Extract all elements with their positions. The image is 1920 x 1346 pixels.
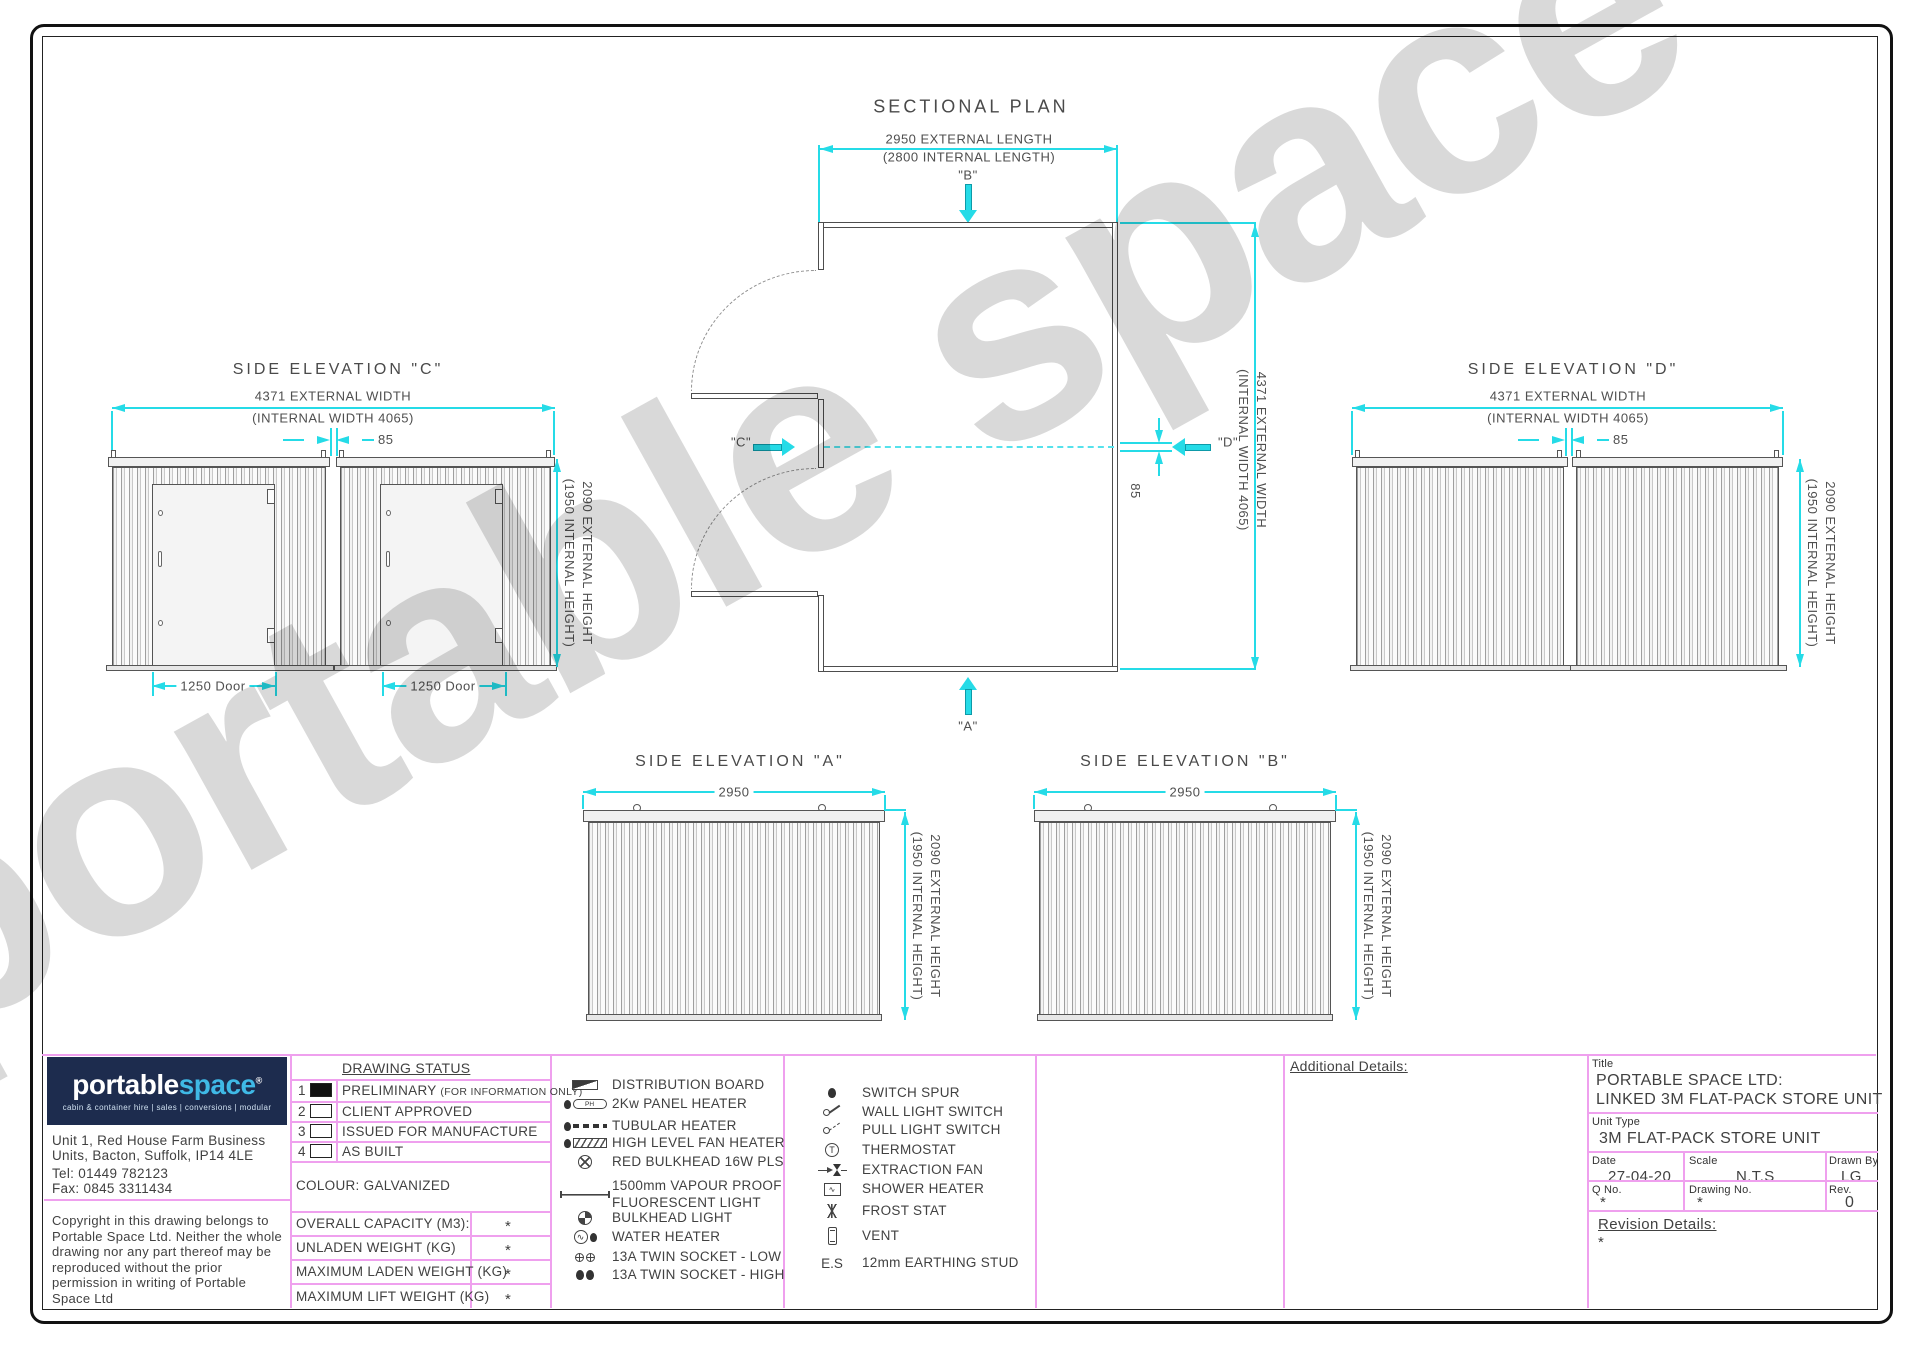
dim-arrow: [262, 682, 275, 690]
legend-row: 1500mm VAPOUR PROOF FLUORESCENT LIGHT: [558, 1178, 787, 1212]
elev-c-height-dim: 2090 EXTERNAL HEIGHT (1950 INTERNAL HEIG…: [560, 479, 596, 648]
legend-label: RED BULKHEAD 16W PLS: [612, 1154, 787, 1171]
dim-ext-line: [1518, 439, 1539, 441]
legend-label: VENT: [862, 1228, 1037, 1245]
company-fax: Fax: 0845 3311434: [52, 1181, 172, 1196]
table-line: [1587, 1210, 1878, 1212]
dim-ext-line: [818, 145, 820, 222]
title-line2: LINKED 3M FLAT-PACK STORE UNIT: [1596, 1091, 1883, 1109]
section-arrow-c: [753, 444, 782, 451]
elev-a-body: [588, 822, 880, 1016]
water-heater-icon: ∿: [558, 1230, 612, 1244]
elev-a-height-dim-line1: 2090 EXTERNAL HEIGHT: [926, 832, 944, 1001]
dim-arrow: [152, 682, 165, 690]
elev-a-roof: [583, 810, 885, 822]
fluorescent-light-icon: [558, 1191, 612, 1198]
dim-arrow: [1155, 451, 1163, 464]
dim-ext-line: [283, 439, 304, 441]
dim-arrow: [820, 145, 833, 153]
dim-ext-line: [1120, 442, 1172, 444]
table-line: [42, 1054, 1876, 1056]
scale-label: Scale: [1689, 1155, 1718, 1167]
dim-arrow: [1251, 657, 1259, 670]
dim-line: [904, 812, 906, 1020]
legend-row: WALL LIGHT SWITCH: [812, 1104, 1037, 1121]
legend-row: TUBULAR HEATER: [558, 1118, 787, 1135]
panel-heater-icon: PH: [558, 1099, 612, 1109]
weight-value: *: [505, 1242, 511, 1259]
door-hinge: [267, 628, 275, 643]
plan-wall-top: [818, 222, 1118, 228]
thermostat-icon: T: [812, 1143, 852, 1157]
elev-c-door-1: [152, 484, 275, 667]
dim-ext-line: [1335, 809, 1357, 811]
dim-arrow: [382, 682, 395, 690]
door-hole: [158, 620, 163, 626]
plan-gap-dim: 85: [1126, 483, 1144, 498]
table-line: [290, 1161, 550, 1163]
wall-light-switch-icon: [812, 1109, 852, 1116]
elev-c-width-dim-text2: (INTERNAL WIDTH 4065): [252, 411, 414, 426]
drawn-by-label: Drawn By: [1829, 1155, 1878, 1167]
weight-label: OVERALL CAPACITY (M3):: [296, 1216, 470, 1231]
dim-ext-line: [362, 439, 374, 441]
drawing-status-header: DRAWING STATUS: [342, 1060, 470, 1076]
dim-ext-line: [884, 809, 906, 811]
legend-row: 13A TWIN SOCKET - HIGH: [558, 1267, 787, 1284]
drawn-by-value: LG: [1841, 1168, 1862, 1185]
dim-ext-line: [553, 411, 555, 455]
red-bulkhead-icon: [558, 1155, 612, 1169]
dim-ext-line: [582, 795, 584, 809]
dim-arrow: [112, 404, 125, 412]
dim-arrow: [1571, 436, 1584, 444]
legend-row: EXTRACTION FAN: [812, 1162, 1037, 1179]
dim-arrow: [1552, 436, 1565, 444]
dim-ext-line: [1597, 439, 1609, 441]
elev-c-door-dim-2: 1250 Door: [406, 679, 479, 694]
company-address-line1: Unit 1, Red House Farm Business: [52, 1133, 265, 1148]
plan-door-leaf-2: [691, 591, 818, 597]
plan-width-dim-line1: 4371 EXTERNAL WIDTH: [1252, 369, 1270, 531]
status-label-3: ISSUED FOR MANUFACTURE: [342, 1124, 538, 1139]
legend-row: BULKHEAD LIGHT: [558, 1210, 787, 1227]
twin-socket-low-icon: [558, 1253, 612, 1262]
table-line: [290, 1101, 550, 1103]
legend-row: ∿ SHOWER HEATER: [812, 1181, 1037, 1198]
dim-line: [112, 407, 555, 409]
door-hole: [158, 510, 163, 516]
elev-c-roof-1: [108, 457, 330, 467]
status-row-num: 1: [298, 1083, 306, 1098]
table-line: [290, 1054, 292, 1308]
legend-label: DISTRIBUTION BOARD: [612, 1077, 787, 1094]
dim-ext-line: [1565, 428, 1567, 456]
frost-stat-icon: [812, 1204, 852, 1218]
dim-arrow: [1796, 654, 1804, 667]
legend-row: E.S 12mm EARTHING STUD: [812, 1255, 1037, 1272]
company-logo: portablespace® cabin & container hire | …: [47, 1057, 287, 1125]
dim-arrow: [901, 1007, 909, 1020]
elev-a-height-dim: 2090 EXTERNAL HEIGHT (1950 INTERNAL HEIG…: [908, 832, 944, 1001]
plan-marker-b: "B": [958, 168, 977, 183]
tubular-heater-icon: [558, 1122, 612, 1131]
water-heater-glyph: ∿: [574, 1230, 588, 1244]
weight-value: *: [505, 1291, 511, 1308]
dim-line: [1355, 812, 1357, 1020]
legend-label: FROST STAT: [862, 1203, 1037, 1220]
door-hinge: [267, 489, 275, 504]
thermostat-glyph: T: [825, 1143, 839, 1157]
dim-arrow: [1352, 812, 1360, 825]
elev-d-height-dim-line2: (1950 INTERNAL HEIGHT): [1803, 479, 1821, 648]
elev-d-height-dim-line1: 2090 EXTERNAL HEIGHT: [1821, 479, 1839, 648]
legend-row: FROST STAT: [812, 1203, 1037, 1220]
dim-arrow: [1251, 224, 1259, 237]
dim-arrow: [1796, 459, 1804, 472]
elev-b-body: [1039, 822, 1331, 1016]
revision-details-value: *: [1598, 1234, 1604, 1251]
logo-part1: portable: [72, 1069, 178, 1100]
elev-d-base-1: [1350, 665, 1572, 671]
elev-d-width-dim-text2: (INTERNAL WIDTH 4065): [1487, 411, 1649, 426]
elev-c-height-dim-line1: 2090 EXTERNAL HEIGHT: [578, 479, 596, 648]
status-label-2: CLIENT APPROVED: [342, 1104, 472, 1119]
elev-d-roof-1: [1352, 457, 1568, 467]
table-line: [290, 1259, 550, 1261]
dim-arrow: [583, 788, 596, 796]
dim-line: [820, 148, 1117, 150]
dim-ext-line: [275, 672, 277, 696]
elev-d-width-dim-text1: 4371 EXTERNAL WIDTH: [1490, 389, 1646, 404]
legend-label: SWITCH SPUR: [862, 1085, 1037, 1102]
door-hole: [386, 510, 391, 516]
panel-heater-label: PH: [573, 1099, 607, 1109]
status-label-1: PRELIMINARY: [342, 1083, 436, 1098]
unit-type-label: Unit Type: [1592, 1116, 1640, 1128]
vent-icon: [812, 1227, 852, 1245]
qno-value: *: [1600, 1194, 1606, 1211]
status-row-num: 3: [298, 1124, 306, 1139]
plan-width-dim: 4371 EXTERNAL WIDTH (INTERNAL WIDTH 4065…: [1234, 369, 1270, 531]
status-label-4: AS BUILT: [342, 1144, 403, 1159]
door-hole: [386, 620, 391, 626]
elev-d-body-2: [1576, 467, 1779, 667]
section-arrow-d-head: [1172, 438, 1185, 456]
elev-b-height-dim: 2090 EXTERNAL HEIGHT (1950 INTERNAL HEIG…: [1359, 832, 1395, 1001]
elev-a-length-dim: 2950: [715, 785, 754, 800]
unit-type-value: 3M FLAT-PACK STORE UNIT: [1599, 1130, 1821, 1148]
title-label: Title: [1592, 1058, 1613, 1070]
legend-row: ∿ WATER HEATER: [558, 1229, 787, 1246]
table-line: [290, 1141, 550, 1143]
shower-heater-icon: ∿: [812, 1183, 852, 1196]
elev-d-base-2: [1570, 665, 1787, 671]
switch-spur-icon: [812, 1088, 852, 1098]
dim-arrow: [1352, 1007, 1360, 1020]
elev-d-roof-2: [1572, 457, 1783, 467]
elev-b-roof: [1034, 810, 1336, 822]
elevation-d-title: SIDE ELEVATION "D": [1468, 361, 1679, 379]
dim-ext-line: [1120, 450, 1172, 452]
section-arrow-c-head: [782, 438, 795, 456]
company-tel: Tel: 01449 782123: [52, 1166, 168, 1181]
scale-value: N.T.S: [1736, 1168, 1775, 1185]
elevation-c-title: SIDE ELEVATION "C": [233, 361, 444, 379]
door-hinge: [495, 489, 503, 504]
legend-label: 13A TWIN SOCKET - HIGH: [612, 1267, 787, 1284]
door-slot: [158, 551, 162, 567]
table-line: [290, 1079, 550, 1081]
qno-label: Q No.: [1592, 1184, 1622, 1196]
logo-registered-mark: ®: [256, 1075, 262, 1085]
dim-ext-line: [1158, 463, 1160, 476]
drawing-no-value: *: [1697, 1194, 1703, 1211]
status-row-num: 4: [298, 1144, 306, 1159]
dim-ext-line: [111, 411, 113, 455]
elevation-a-title: SIDE ELEVATION "A": [635, 753, 845, 771]
dim-arrow: [553, 459, 561, 472]
status-checkbox-2[interactable]: [310, 1104, 332, 1118]
section-arrow-b: [965, 184, 972, 211]
plan-title: SECTIONAL PLAN: [873, 97, 1068, 118]
elev-c-door-2: [380, 484, 503, 667]
additional-details-header: Additional Details:: [1290, 1058, 1408, 1074]
weight-label: MAXIMUM LADEN WEIGHT (KG): [296, 1264, 507, 1279]
plan-wall-bottom: [818, 666, 1118, 672]
dim-arrow: [1104, 145, 1117, 153]
elev-c-door-dim-1: 1250 Door: [176, 679, 249, 694]
door-slot: [386, 551, 390, 567]
weight-label: MAXIMUM LIFT WEIGHT (KG): [296, 1289, 489, 1304]
legend-label: PULL LIGHT SWITCH: [862, 1122, 1037, 1139]
dim-ext-line: [1782, 411, 1784, 455]
plan-wall-left-stub2: [818, 595, 824, 672]
dim-ext-line: [1120, 668, 1256, 670]
dim-ext-line: [1571, 428, 1573, 456]
status-checkbox-4[interactable]: [310, 1144, 332, 1158]
dim-ext-line: [505, 672, 507, 696]
table-line: [290, 1121, 550, 1123]
legend-label: 1500mm VAPOUR PROOF FLUORESCENT LIGHT: [612, 1178, 787, 1212]
legend-label: 12mm EARTHING STUD: [862, 1255, 1037, 1272]
legend-label: 2Kw PANEL HEATER: [612, 1096, 787, 1113]
plan-wall-left-mid: [818, 399, 824, 468]
elev-d-gap-dim: 85: [1613, 432, 1628, 447]
elev-a-base: [586, 1014, 882, 1021]
legend-label: WALL LIGHT SWITCH: [862, 1104, 1037, 1121]
earthing-stud-icon: E.S: [812, 1256, 852, 1271]
status-row-label: PRELIMINARY (FOR INFORMATION ONLY): [342, 1083, 583, 1098]
status-checkbox-1[interactable]: [310, 1083, 332, 1097]
elev-c-width-dim-text1: 4371 EXTERNAL WIDTH: [255, 389, 411, 404]
fan-heater-icon: [558, 1138, 612, 1148]
legend-label: BULKHEAD LIGHT: [612, 1210, 787, 1227]
logo-part2: space: [179, 1069, 256, 1100]
dim-ext-line: [336, 428, 338, 456]
elev-d-body-1: [1356, 467, 1564, 667]
section-arrow-a: [965, 689, 972, 715]
door-hinge: [495, 628, 503, 643]
table-line: [336, 1079, 338, 1161]
plan-length-dim-text1: 2950 EXTERNAL LENGTH: [885, 132, 1052, 147]
elev-b-base: [1037, 1014, 1333, 1021]
plan-width-dim-line2: (INTERNAL WIDTH 4065): [1234, 369, 1252, 531]
title-line1: PORTABLE SPACE LTD:: [1596, 1072, 1783, 1090]
dim-arrow: [1034, 788, 1047, 796]
dim-arrow: [901, 812, 909, 825]
elev-c-height-dim-line2: (1950 INTERNAL HEIGHT): [560, 479, 578, 648]
weight-value: *: [505, 1266, 511, 1283]
legend-row: RED BULKHEAD 16W PLS: [558, 1154, 787, 1171]
colour-value: COLOUR: GALVANIZED: [296, 1178, 450, 1193]
legend-row: DISTRIBUTION BOARD: [558, 1077, 787, 1094]
elev-c-base-1: [106, 665, 334, 671]
elev-c-gap-dim: 85: [378, 432, 393, 447]
table-line: [1587, 1112, 1878, 1114]
date-label: Date: [1592, 1155, 1616, 1167]
legend-row: PULL LIGHT SWITCH: [812, 1122, 1037, 1139]
dim-ext-line: [330, 428, 332, 456]
section-arrow-d: [1185, 444, 1211, 451]
plan-door-leaf-1: [691, 393, 818, 399]
weight-label: UNLADEN WEIGHT (KG): [296, 1240, 456, 1255]
legend-row: 13A TWIN SOCKET - LOW: [558, 1249, 787, 1266]
table-line: [290, 1235, 550, 1237]
dim-arrow: [336, 436, 349, 444]
legend-label: 13A TWIN SOCKET - LOW: [612, 1249, 787, 1266]
dim-ext-line: [1335, 795, 1337, 809]
legend-row: VENT: [812, 1227, 1037, 1245]
revision-details-header: Revision Details:: [1598, 1216, 1717, 1233]
plan-marker-a: "A": [958, 719, 977, 734]
legend-label: EXTRACTION FAN: [862, 1162, 1037, 1179]
table-line: [1283, 1054, 1285, 1308]
dim-ext-line: [1351, 411, 1353, 455]
dim-ext-line: [1120, 222, 1256, 224]
dim-arrow: [1352, 404, 1365, 412]
legend-label: TUBULAR HEATER: [612, 1118, 787, 1135]
logo-tagline: cabin & container hire | sales | convers…: [63, 1103, 272, 1112]
legend-label: WATER HEATER: [612, 1229, 787, 1246]
legend-label: THERMOSTAT: [862, 1142, 1037, 1159]
extraction-fan-icon: [812, 1164, 852, 1176]
elev-c-roof-2: [336, 457, 555, 467]
elevation-b-title: SIDE ELEVATION "B": [1080, 753, 1290, 771]
legend-row: T THERMOSTAT: [812, 1142, 1037, 1159]
legend-row: PH 2Kw PANEL HEATER: [558, 1096, 787, 1113]
dim-arrow: [553, 654, 561, 667]
dim-line: [1799, 459, 1801, 667]
dim-line: [556, 459, 558, 667]
weight-value: *: [505, 1218, 511, 1235]
plan-marker-c: "C": [731, 435, 751, 450]
date-value: 27-04-20: [1608, 1168, 1671, 1185]
plan-length-dim-text2: (2800 INTERNAL LENGTH): [883, 150, 1055, 165]
table-line: [290, 1283, 550, 1285]
elev-b-height-dim-line1: 2090 EXTERNAL HEIGHT: [1377, 832, 1395, 1001]
legend-row: HIGH LEVEL FAN HEATER: [558, 1135, 787, 1152]
elev-a-height-dim-line2: (1950 INTERNAL HEIGHT): [908, 832, 926, 1001]
distribution-board-icon: [558, 1080, 612, 1090]
table-line: [290, 1211, 550, 1213]
elev-b-length-dim: 2950: [1166, 785, 1205, 800]
shower-heater-glyph: ∿: [824, 1183, 841, 1196]
status-row-num: 2: [298, 1104, 306, 1119]
logo-wordmark: portablespace®: [72, 1071, 262, 1099]
earthing-stud-prefix: E.S: [821, 1256, 843, 1271]
dim-ext-line: [884, 795, 886, 809]
table-line: [44, 1199, 290, 1201]
legend-label: SHOWER HEATER: [862, 1181, 1037, 1198]
table-line: [1587, 1180, 1878, 1182]
elev-d-height-dim: 2090 EXTERNAL HEIGHT (1950 INTERNAL HEIG…: [1803, 479, 1839, 648]
dim-arrow: [317, 436, 330, 444]
drawing-sheet: SECTIONAL PLAN 2950 EXTERNAL LENGTH (280…: [0, 0, 1920, 1346]
bulkhead-light-icon: [558, 1211, 612, 1225]
elev-c-base-2: [334, 665, 557, 671]
dim-line: [1352, 407, 1783, 409]
legend-label: HIGH LEVEL FAN HEATER: [612, 1135, 787, 1152]
pull-light-switch-icon: [812, 1127, 852, 1134]
dim-arrow: [1155, 430, 1163, 443]
twin-socket-high-icon: [558, 1270, 612, 1280]
table-line: [1587, 1151, 1878, 1153]
dim-arrow: [492, 682, 505, 690]
legend-row: SWITCH SPUR: [812, 1085, 1037, 1102]
elev-b-height-dim-line2: (1950 INTERNAL HEIGHT): [1359, 832, 1377, 1001]
copyright-note: Copyright in this drawing belongs to Por…: [52, 1213, 284, 1306]
plan-wall-left-stub1: [818, 222, 824, 270]
company-address-line2: Units, Bacton, Suffolk, IP14 4LE: [52, 1148, 253, 1163]
plan-section-line: [824, 446, 1114, 448]
status-checkbox-3[interactable]: [310, 1124, 332, 1138]
dim-ext-line: [1116, 145, 1118, 222]
dim-ext-line: [1033, 795, 1035, 809]
